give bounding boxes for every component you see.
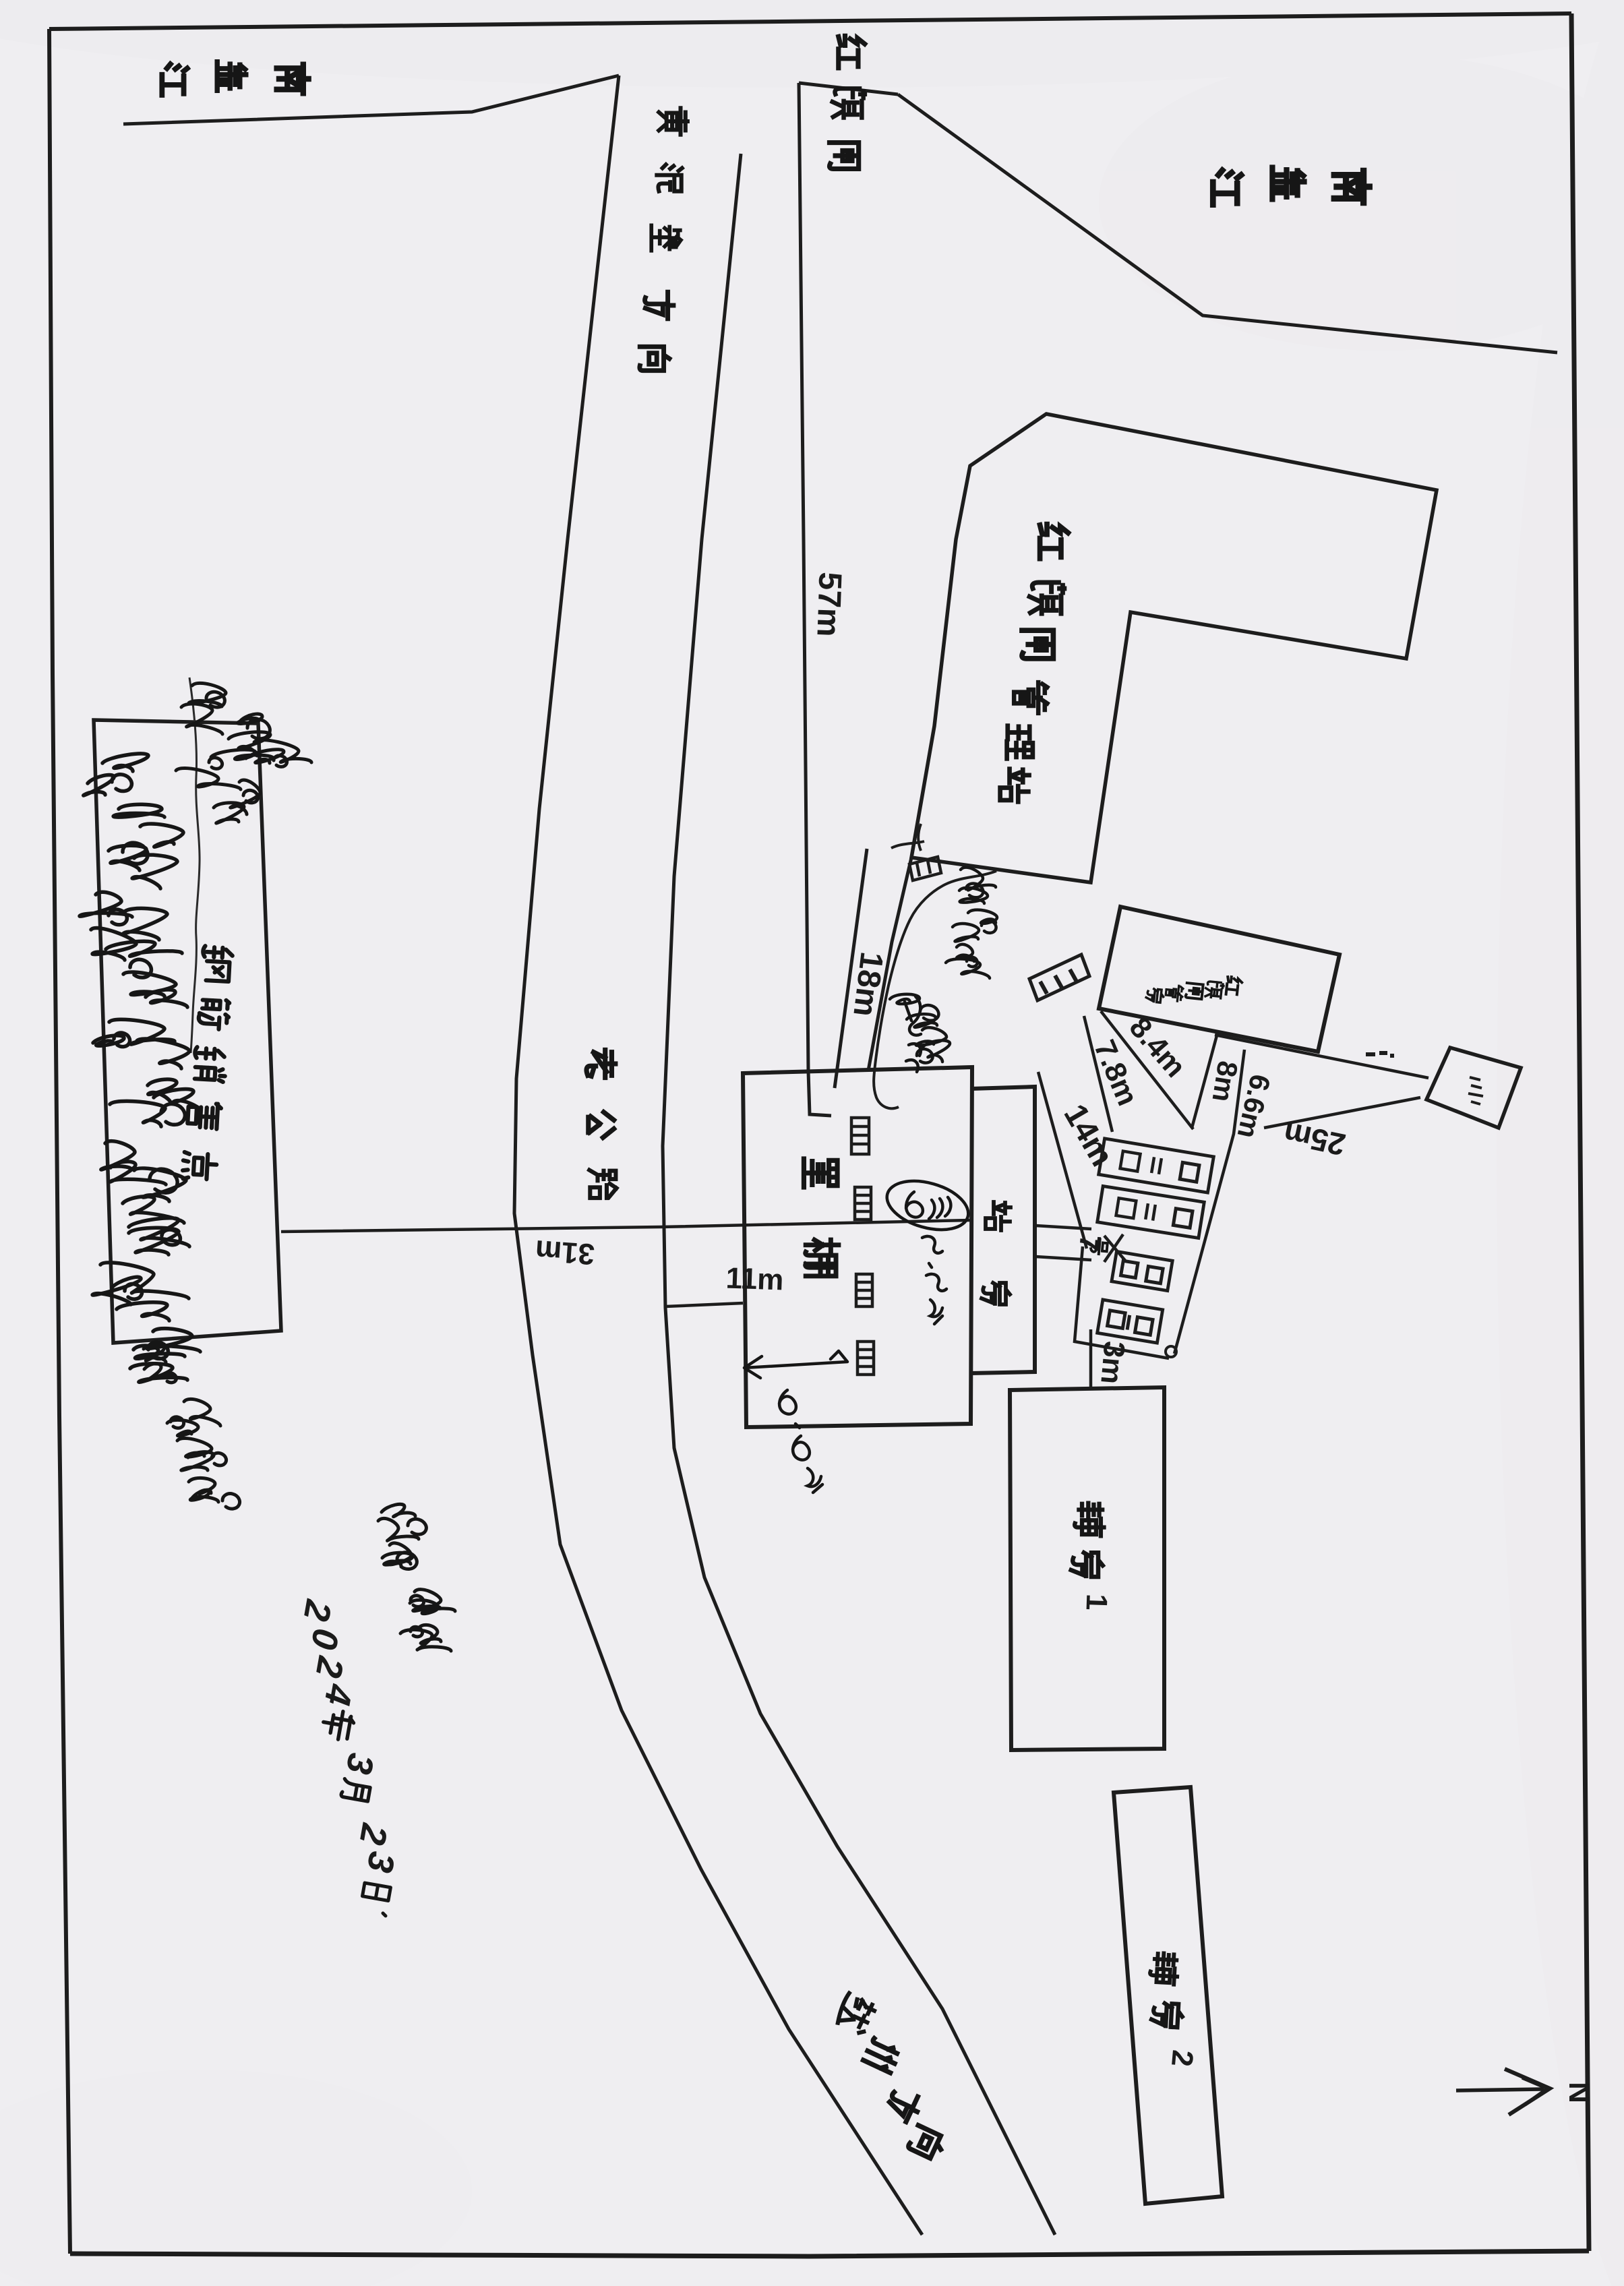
svg-text:0: 0 bbox=[303, 1625, 347, 1652]
svg-text:3: 3 bbox=[359, 1848, 402, 1875]
svg-text:N: N bbox=[1563, 2082, 1596, 2103]
svg-text:11m: 11m bbox=[725, 1262, 784, 1297]
svg-text:8m: 8m bbox=[1206, 1059, 1244, 1104]
svg-text:25m: 25m bbox=[1280, 1116, 1348, 1163]
svg-text:2: 2 bbox=[1165, 2049, 1199, 2068]
svg-text:4: 4 bbox=[317, 1681, 360, 1708]
svg-text:2: 2 bbox=[352, 1820, 395, 1848]
svg-text:2: 2 bbox=[308, 1653, 351, 1681]
svg-text:57m: 57m bbox=[810, 572, 847, 638]
svg-text:31m: 31m bbox=[534, 1234, 595, 1271]
svg-text:14m: 14m bbox=[1056, 1098, 1120, 1172]
svg-text:2: 2 bbox=[296, 1596, 339, 1624]
svg-text:3: 3 bbox=[338, 1750, 382, 1777]
svg-text:3m: 3m bbox=[1094, 1340, 1131, 1385]
svg-text:1: 1 bbox=[1080, 1593, 1114, 1611]
